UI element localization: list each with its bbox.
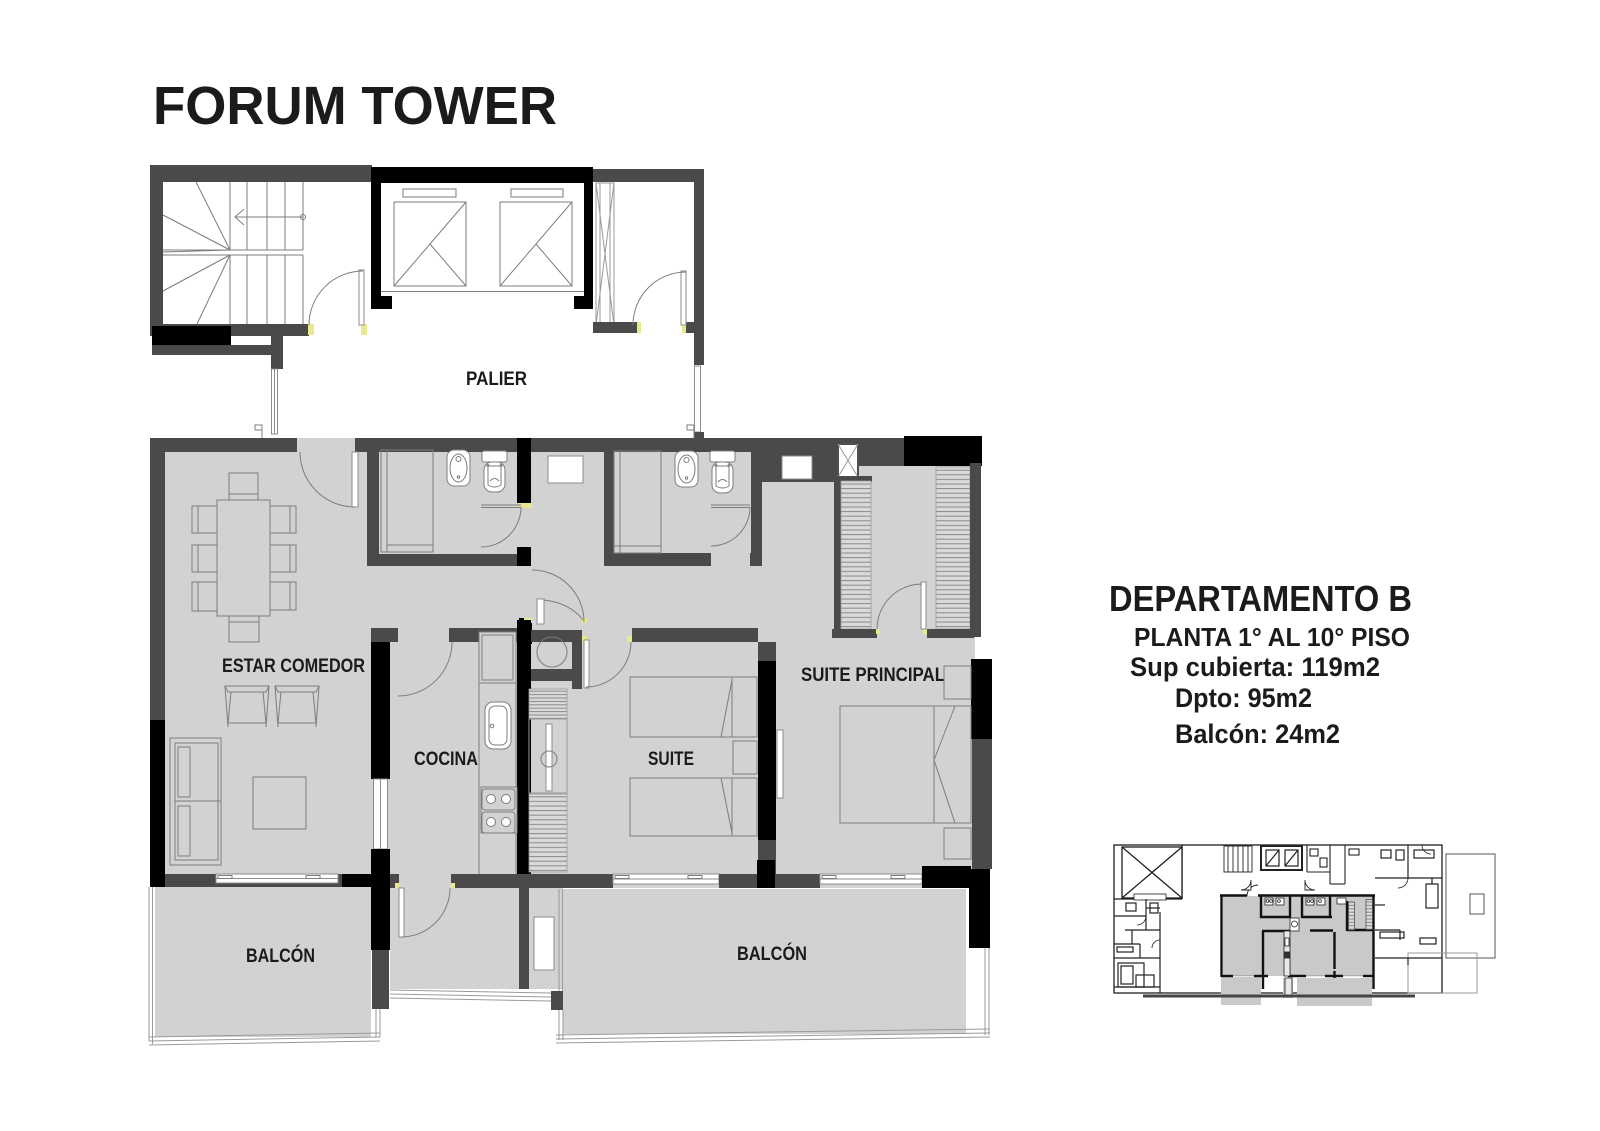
svg-text:Sup cubierta: 119m2: Sup cubierta: 119m2 [1130, 652, 1380, 682]
svg-text:PLANTA 1° AL 10° PISO: PLANTA 1° AL 10° PISO [1134, 622, 1410, 652]
svg-text:BALCÓN: BALCÓN [246, 943, 315, 967]
svg-text:SUITE: SUITE [648, 748, 694, 770]
svg-text:Dpto: 95m2: Dpto: 95m2 [1175, 683, 1312, 713]
svg-text:SUITE PRINCIPAL: SUITE PRINCIPAL [801, 664, 945, 686]
svg-text:Balcón: 24m2: Balcón: 24m2 [1175, 719, 1340, 749]
svg-text:PALIER: PALIER [466, 369, 527, 390]
svg-text:FORUM TOWER: FORUM TOWER [153, 76, 557, 136]
svg-text:DEPARTAMENTO B: DEPARTAMENTO B [1109, 578, 1412, 619]
svg-text:COCINA: COCINA [414, 748, 478, 770]
svg-text:BALCÓN: BALCÓN [737, 941, 807, 965]
svg-text:ESTAR COMEDOR: ESTAR COMEDOR [222, 655, 365, 677]
